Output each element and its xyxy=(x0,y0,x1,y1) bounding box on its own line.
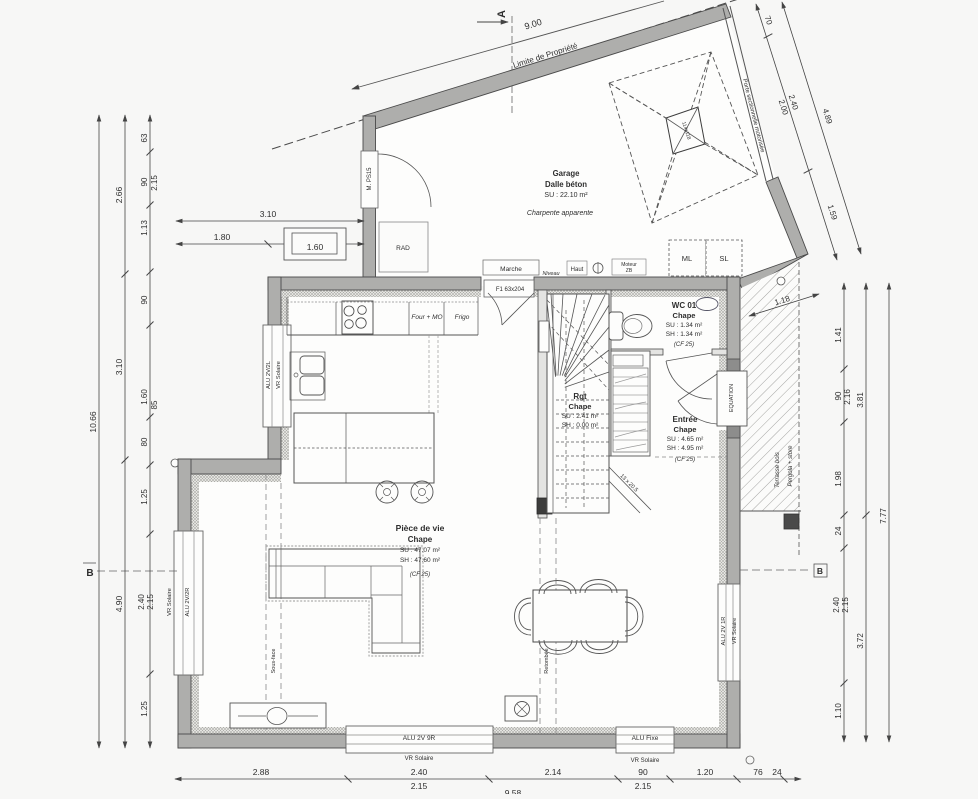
svg-text:24: 24 xyxy=(772,767,782,777)
svg-text:Charpente apparente: Charpente apparente xyxy=(527,210,593,217)
svg-text:2.66: 2.66 xyxy=(114,186,124,203)
svg-text:VR Solaire: VR Solaire xyxy=(732,618,738,644)
svg-text:90: 90 xyxy=(834,391,843,400)
svg-text:2.14: 2.14 xyxy=(545,767,562,777)
svg-text:SH : 4.95 m²: SH : 4.95 m² xyxy=(667,445,704,452)
svg-text:2.15: 2.15 xyxy=(635,781,652,791)
svg-text:M. PS15: M. PS15 xyxy=(367,167,373,191)
svg-text:(CF 25): (CF 25) xyxy=(675,457,695,463)
svg-text:B: B xyxy=(817,566,823,576)
svg-text:ML: ML xyxy=(682,254,692,263)
svg-text:90: 90 xyxy=(140,295,149,304)
svg-text:Four + MO: Four + MO xyxy=(411,314,442,321)
svg-text:VR Solaire: VR Solaire xyxy=(405,756,434,762)
svg-text:1.13: 1.13 xyxy=(140,220,149,236)
svg-text:7.77: 7.77 xyxy=(879,508,888,524)
svg-text:9.58: 9.58 xyxy=(505,788,522,794)
svg-text:2.40: 2.40 xyxy=(411,767,428,777)
svg-text:ALU Fixe: ALU Fixe xyxy=(632,735,659,742)
svg-text:SU : 47.07 m²: SU : 47.07 m² xyxy=(400,547,441,554)
svg-text:A: A xyxy=(496,10,508,18)
svg-text:1.41: 1.41 xyxy=(834,327,843,343)
svg-text:Chape: Chape xyxy=(408,535,433,544)
svg-text:SH : 47.60 m²: SH : 47.60 m² xyxy=(400,557,441,564)
svg-text:VR Solaire: VR Solaire xyxy=(276,361,282,389)
svg-text:Chape: Chape xyxy=(674,425,697,434)
svg-text:WC 01: WC 01 xyxy=(672,301,697,310)
svg-text:Sous-face: Sous-face xyxy=(271,649,277,674)
svg-text:B: B xyxy=(86,568,93,579)
svg-text:Niveau: Niveau xyxy=(542,271,559,277)
svg-text:3.72: 3.72 xyxy=(856,633,865,649)
svg-text:SU : 1.34 m²: SU : 1.34 m² xyxy=(666,322,703,329)
svg-text:(CF 25): (CF 25) xyxy=(674,342,694,348)
svg-text:EQUATION: EQUATION xyxy=(729,384,735,412)
svg-text:Entrée: Entrée xyxy=(673,415,698,424)
svg-text:1.60: 1.60 xyxy=(307,242,324,252)
svg-text:4.90: 4.90 xyxy=(114,595,124,612)
svg-text:90: 90 xyxy=(140,177,149,186)
svg-text:90: 90 xyxy=(638,767,648,777)
svg-text:RAD: RAD xyxy=(396,245,410,252)
svg-text:2.16: 2.16 xyxy=(843,389,852,405)
svg-text:2.15: 2.15 xyxy=(146,594,155,610)
svg-text:2.15: 2.15 xyxy=(150,175,159,191)
svg-text:1.10: 1.10 xyxy=(834,703,843,719)
svg-text:63: 63 xyxy=(140,133,149,142)
svg-text:Rgt: Rgt xyxy=(573,392,587,401)
svg-text:3.81: 3.81 xyxy=(856,392,865,408)
svg-text:85: 85 xyxy=(150,400,159,409)
svg-text:2.40: 2.40 xyxy=(137,594,146,610)
svg-text:1.25: 1.25 xyxy=(140,701,149,717)
svg-text:1.20: 1.20 xyxy=(697,767,714,777)
svg-text:Haut: Haut xyxy=(571,267,584,273)
svg-text:2.15: 2.15 xyxy=(841,597,850,613)
svg-text:3.10: 3.10 xyxy=(114,358,124,375)
svg-text:SL: SL xyxy=(719,254,728,263)
svg-text:2.88: 2.88 xyxy=(253,767,270,777)
svg-text:2.15: 2.15 xyxy=(411,781,428,791)
svg-text:80: 80 xyxy=(140,437,149,446)
svg-text:ALU 2V 9R: ALU 2V 9R xyxy=(403,735,436,742)
svg-text:Pièce de vie: Pièce de vie xyxy=(396,523,445,533)
svg-text:Pergola + store: Pergola + store xyxy=(788,445,794,487)
svg-text:SU : 22.10 m²: SU : 22.10 m² xyxy=(544,192,588,199)
svg-text:10.66: 10.66 xyxy=(88,411,98,433)
svg-text:ALU 2V/2R: ALU 2V/2R xyxy=(185,588,191,617)
svg-text:Terrasse bois: Terrasse bois xyxy=(775,452,781,488)
svg-text:1.25: 1.25 xyxy=(140,489,149,505)
svg-text:SH : 0.00 m²: SH : 0.00 m² xyxy=(562,422,599,429)
svg-text:ALU 2V 1R: ALU 2V 1R xyxy=(721,617,727,646)
svg-text:1.80: 1.80 xyxy=(214,232,231,242)
svg-text:Garage: Garage xyxy=(553,169,581,178)
svg-text:ZB: ZB xyxy=(626,268,633,274)
svg-text:VR Solaire: VR Solaire xyxy=(167,588,173,616)
svg-text:SH : 1.34 m²: SH : 1.34 m² xyxy=(666,331,703,338)
svg-text:1.60: 1.60 xyxy=(140,389,149,405)
svg-text:Dalle béton: Dalle béton xyxy=(545,180,587,189)
svg-text:SU : 4.65 m²: SU : 4.65 m² xyxy=(667,436,704,443)
svg-text:Marche: Marche xyxy=(500,266,522,273)
svg-text:24: 24 xyxy=(834,526,843,535)
svg-text:(CF 25): (CF 25) xyxy=(410,572,430,578)
svg-text:Chape: Chape xyxy=(673,311,696,320)
svg-text:SU : 2.41 m²: SU : 2.41 m² xyxy=(562,413,599,420)
svg-text:2.40: 2.40 xyxy=(832,597,841,613)
svg-text:3.10: 3.10 xyxy=(260,209,277,219)
svg-text:Chape: Chape xyxy=(569,402,592,411)
svg-text:ALU 2V/2L: ALU 2V/2L xyxy=(266,360,272,389)
svg-text:1.98: 1.98 xyxy=(834,471,843,487)
svg-text:Frigo: Frigo xyxy=(455,314,470,321)
svg-text:76: 76 xyxy=(753,767,763,777)
svg-text:F1 63x204: F1 63x204 xyxy=(496,287,525,293)
svg-text:VR Solaire: VR Solaire xyxy=(631,758,660,764)
